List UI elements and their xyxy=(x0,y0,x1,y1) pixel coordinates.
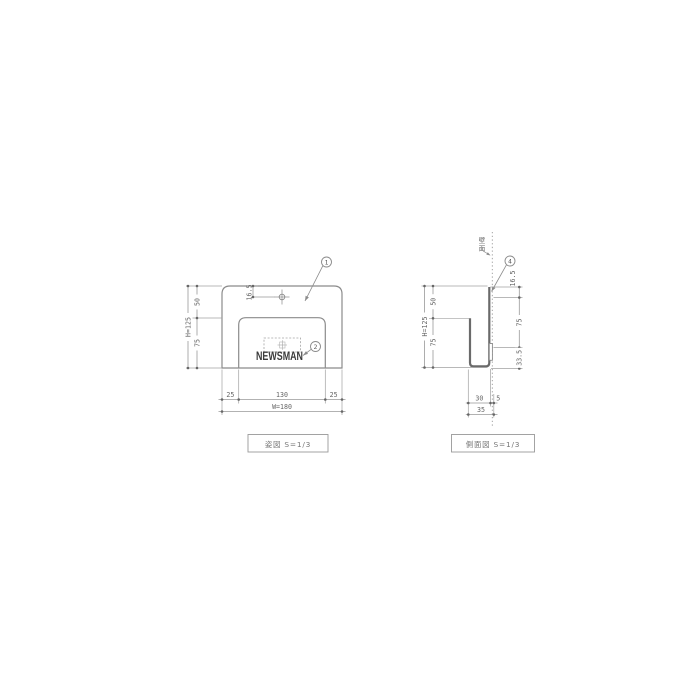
dim-text-side-hole-offset: 16.5 xyxy=(509,271,517,287)
dim-text-front-total-height: H=125 xyxy=(184,317,192,337)
dim-text-side-tape: 33.5 xyxy=(516,350,524,366)
callout-balloon-2: 2 xyxy=(303,342,321,356)
side-caption-label: 側面図 S=1/3 xyxy=(466,440,521,449)
callout-4-number: 4 xyxy=(508,258,512,265)
dim-text-total-depth: 35 xyxy=(477,406,485,414)
dim-front-total-width: W=180 xyxy=(219,403,346,413)
dim-front-hole-offset: 16.5 xyxy=(245,285,275,301)
dim-front-left-chain: 50 75 xyxy=(193,285,202,370)
leader-arrow-icon xyxy=(486,252,490,255)
front-caption-label: 姿図 S=1/3 xyxy=(265,440,311,449)
dim-text-total-width: W=180 xyxy=(272,403,292,411)
dim-text-pocket-width: 130 xyxy=(276,391,288,399)
dim-text-hole-offset: 16.5 xyxy=(245,285,253,301)
drawing-svg: 16.5 50 75 xyxy=(0,0,700,700)
dim-text-front-lower: 75 xyxy=(193,339,201,347)
side-caption-box: 側面図 S=1/3 xyxy=(452,435,535,453)
dim-side-left-chain: 50 75 xyxy=(429,285,438,369)
dim-front-total-height: H=125 xyxy=(184,285,193,370)
callout-2-number: 2 xyxy=(314,344,318,351)
dim-text-left-margin: 25 xyxy=(226,391,234,399)
dim-text-inner-depth: 30 xyxy=(475,394,483,402)
front-view: 16.5 50 75 xyxy=(184,257,346,452)
dim-front-bottom-chain: 25 130 25 xyxy=(219,391,346,401)
wall-surface-label: 壁面 xyxy=(476,237,486,253)
cad-drawing-sheet: 16.5 50 75 xyxy=(0,0,700,700)
logo-placeholder-box xyxy=(264,338,301,352)
callout-1-number: 1 xyxy=(325,259,329,266)
logo-text: NEWSMAN xyxy=(256,351,303,363)
dim-text-side-lower: 75 xyxy=(429,339,437,347)
mounting-tape-block xyxy=(489,344,492,361)
dim-text-side-upper: 50 xyxy=(429,298,437,306)
dim-side-right-chain: 16.5 75 33.5 xyxy=(509,271,524,370)
dim-text-right-margin: 25 xyxy=(330,391,338,399)
side-profile-outline xyxy=(470,287,489,366)
leader-arrow-icon xyxy=(303,351,308,355)
dim-text-wall-gap: 5 xyxy=(496,394,500,402)
dim-text-front-upper: 50 xyxy=(193,298,201,306)
side-view: 4 50 75 xyxy=(420,232,535,452)
dim-text-side-total-height: H=125 xyxy=(421,317,429,337)
leader-arrow-icon xyxy=(305,296,309,301)
hanging-hole-mark xyxy=(275,290,290,305)
callout-balloon-1: 1 xyxy=(305,257,332,301)
front-caption-box: 姿図 S=1/3 xyxy=(248,435,328,453)
dim-text-side-mid: 75 xyxy=(516,319,524,327)
dim-side-bottom-chain: 30 5 xyxy=(466,394,501,404)
dim-side-total-height: H=125 xyxy=(420,285,429,369)
